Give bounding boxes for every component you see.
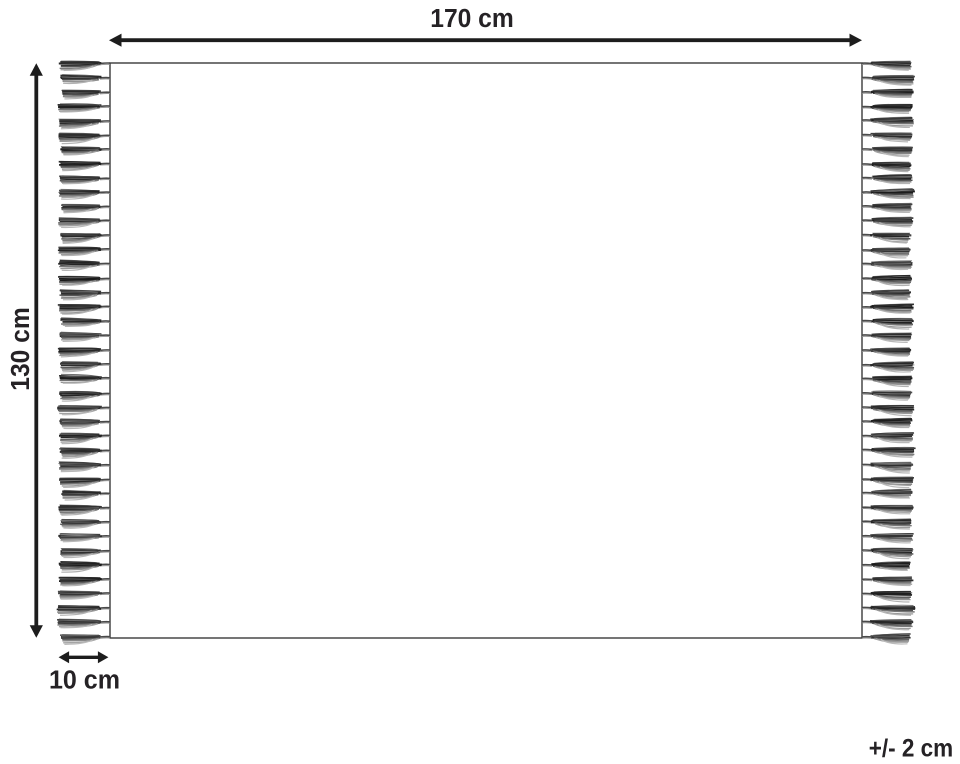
svg-text:130 cm: 130 cm xyxy=(7,307,35,391)
svg-text:10 cm: 10 cm xyxy=(49,666,120,694)
svg-text:170 cm: 170 cm xyxy=(430,5,514,33)
svg-text:+/- 2 cm: +/- 2 cm xyxy=(869,735,954,763)
